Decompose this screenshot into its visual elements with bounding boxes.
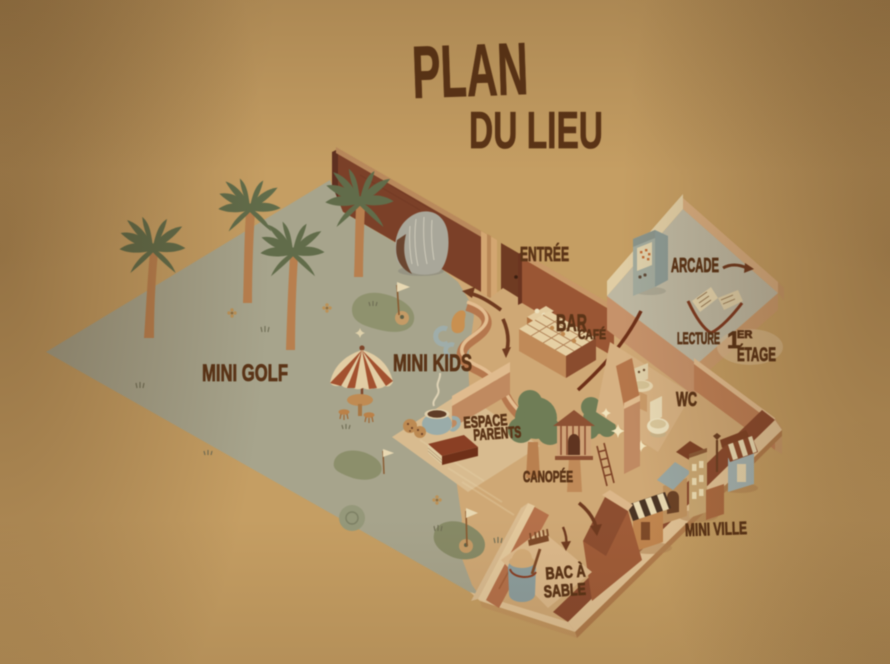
svg-text:PARENTS: PARENTS	[473, 424, 522, 444]
svg-text:CANOPÉE: CANOPÉE	[523, 467, 573, 486]
svg-text:WC: WC	[676, 389, 697, 411]
svg-text:MINI VILLE: MINI VILLE	[685, 518, 748, 540]
svg-text:PLAN: PLAN	[411, 27, 530, 114]
svg-text:ER: ER	[737, 329, 752, 341]
svg-text:ARCADE: ARCADE	[671, 255, 719, 277]
svg-text:ÉTAGE: ÉTAGE	[737, 344, 776, 366]
svg-text:SABLE: SABLE	[543, 580, 586, 602]
svg-text:LECTURE: LECTURE	[677, 329, 720, 348]
svg-text:ENTRÉE: ENTRÉE	[520, 243, 569, 266]
svg-text:CAFÉ: CAFÉ	[578, 326, 606, 342]
svg-text:MINI GOLF: MINI GOLF	[202, 360, 288, 387]
svg-text:MINI KIDS: MINI KIDS	[393, 350, 472, 377]
svg-text:DU LIEU: DU LIEU	[469, 102, 603, 160]
